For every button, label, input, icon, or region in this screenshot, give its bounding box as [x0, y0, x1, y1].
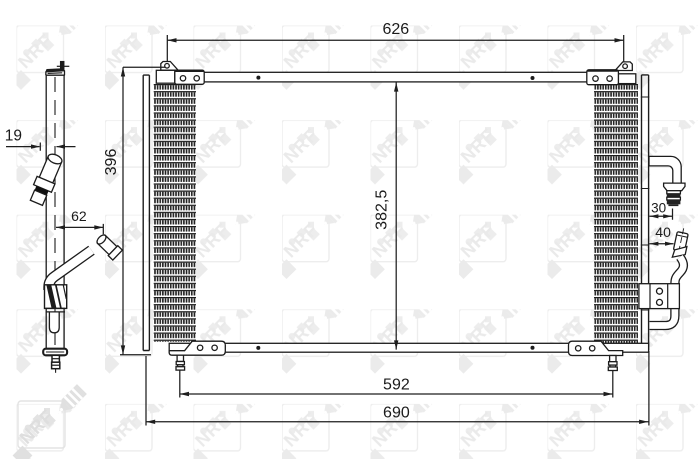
- svg-text:382,5: 382,5: [374, 190, 391, 230]
- svg-text:19: 19: [5, 127, 22, 144]
- svg-text:30: 30: [651, 200, 666, 215]
- svg-text:62: 62: [71, 208, 87, 224]
- svg-text:396: 396: [103, 149, 120, 176]
- svg-text:626: 626: [382, 21, 409, 38]
- svg-text:592: 592: [383, 377, 410, 394]
- svg-text:40: 40: [655, 224, 671, 240]
- svg-text:690: 690: [383, 404, 410, 421]
